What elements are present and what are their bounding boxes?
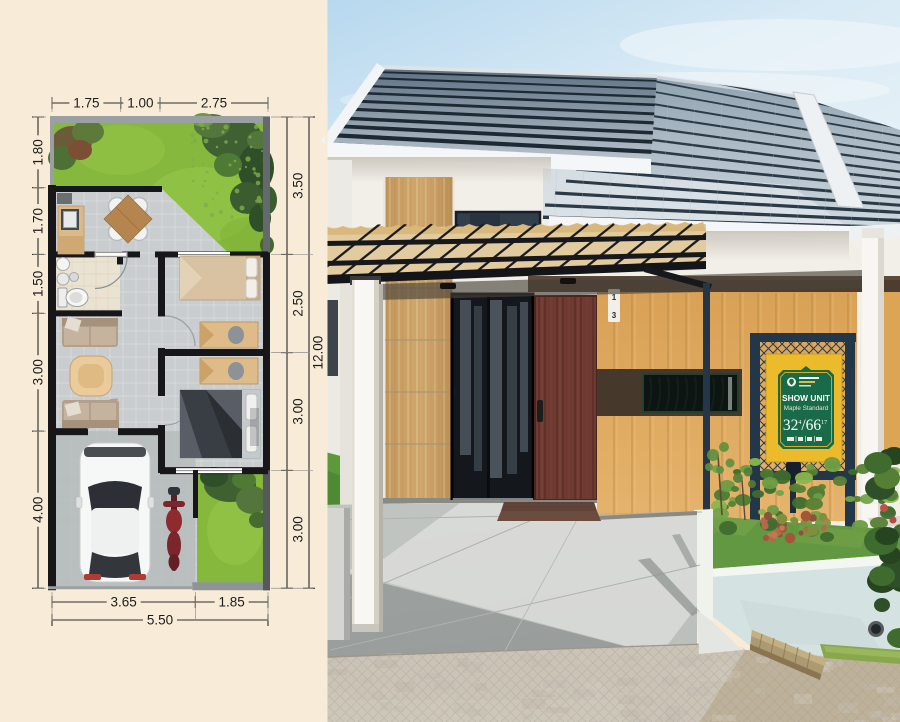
svg-text:4.00: 4.00 — [31, 497, 46, 523]
svg-text:3.65: 3.65 — [111, 595, 137, 610]
svg-text:3.00: 3.00 — [291, 398, 306, 424]
svg-text:2.75: 2.75 — [201, 96, 227, 111]
svg-text:3.00: 3.00 — [291, 516, 306, 542]
svg-text:5.50: 5.50 — [147, 613, 173, 628]
svg-text:1.70: 1.70 — [31, 208, 46, 234]
svg-text:3.00: 3.00 — [31, 359, 46, 385]
svg-text:3.50: 3.50 — [291, 173, 306, 199]
svg-text:3: 3 — [612, 311, 617, 320]
svg-text:1.00: 1.00 — [127, 96, 153, 111]
svg-text:1.75: 1.75 — [73, 96, 99, 111]
svg-text:1.50: 1.50 — [31, 271, 46, 297]
svg-text:1.80: 1.80 — [31, 139, 46, 165]
svg-text:324/6617: 324/6617 — [783, 417, 827, 434]
svg-text:Maple Standard: Maple Standard — [784, 405, 829, 412]
svg-text:SHOW UNIT: SHOW UNIT — [782, 393, 831, 403]
svg-text:2.50: 2.50 — [291, 290, 306, 316]
svg-text:1.85: 1.85 — [219, 595, 245, 610]
svg-text:12.00: 12.00 — [311, 336, 326, 370]
svg-text:1: 1 — [612, 293, 617, 302]
